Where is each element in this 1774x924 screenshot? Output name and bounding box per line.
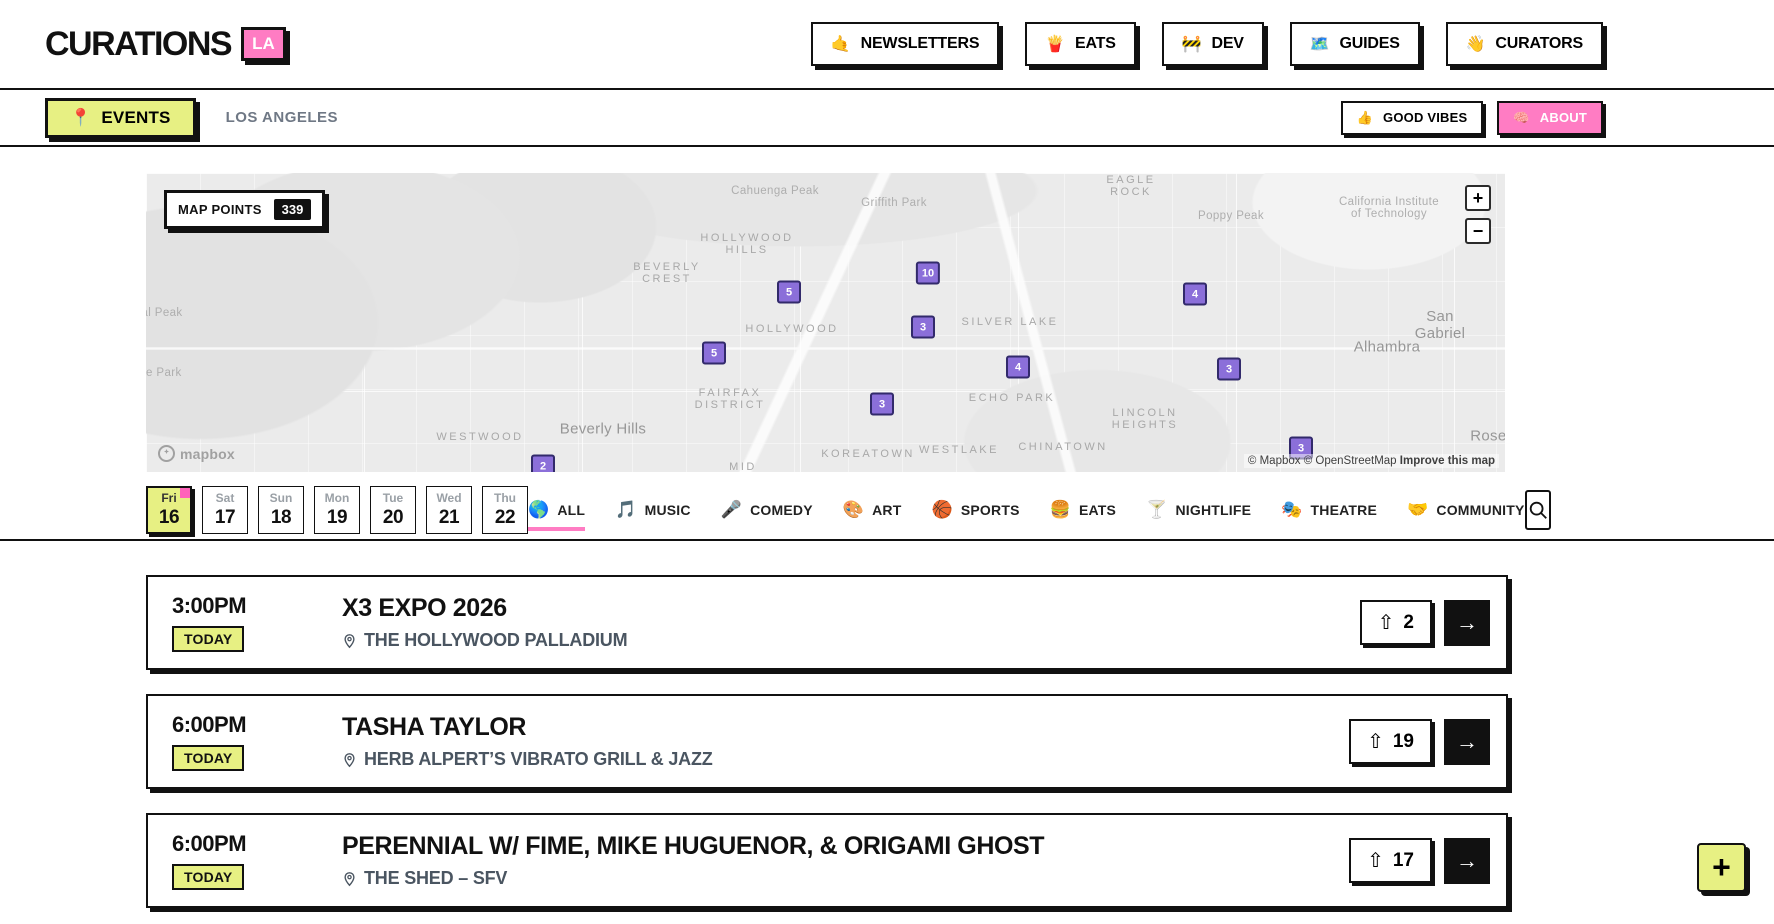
map-cluster-marker[interactable]: 4 — [1006, 356, 1030, 379]
event-venue: HERB ALPERT’S VIBRATO GRILL & JAZZ — [342, 749, 1349, 770]
map-place-label: KOREATOWN — [821, 448, 915, 460]
category-filter[interactable]: 🌎 ALL — [528, 500, 585, 520]
map-place-label: BEVERLY CREST — [633, 261, 700, 285]
event-venue-name: THE HOLLYWOOD PALLADIUM — [364, 630, 627, 651]
date-day-name: Mon — [325, 491, 350, 505]
date-day-name: Sat — [216, 491, 235, 505]
map-place-label: Griffith Park — [861, 197, 927, 209]
category-icon: 🎤 — [721, 500, 742, 520]
map-attribution: © Mapbox © OpenStreetMap Improve this ma… — [1244, 454, 1499, 468]
nav-button-icon: 👋 — [1466, 34, 1486, 54]
category-icon: 🍸 — [1146, 500, 1167, 520]
logo-la-badge: LA — [241, 27, 286, 61]
map-terrain — [146, 173, 1505, 472]
event-venue: THE HOLLYWOOD PALLADIUM — [342, 630, 1360, 651]
upvote-arrow-icon: ⇧ — [1367, 848, 1384, 873]
nav-button-icon: 🤙 — [831, 34, 851, 54]
location-pin-icon — [342, 870, 357, 888]
date-day-number: 18 — [271, 507, 291, 529]
map-cluster-marker[interactable]: 2 — [531, 455, 555, 473]
event-time-column: 6:00PM TODAY — [172, 712, 324, 771]
map-cluster-marker[interactable]: 3 — [870, 393, 894, 416]
nav-button-label: NEWSLETTERS — [861, 35, 980, 53]
date-day-name: Sun — [270, 491, 293, 505]
pin-icon: 📍 — [70, 108, 91, 128]
nav-button-label: GUIDES — [1340, 35, 1400, 53]
brain-icon: 🧠 — [1513, 110, 1529, 126]
map-place-label: te Park — [146, 367, 182, 379]
mapbox-logo[interactable]: mapbox — [158, 445, 235, 462]
nav-button[interactable]: 👋 CURATORS — [1446, 22, 1603, 66]
category-label: EATS — [1079, 502, 1116, 518]
category-filters: 🌎 ALL 🎵 MUSIC 🎤 COMEDY 🎨 ART — [528, 500, 1525, 520]
map-place-label: Beverly Hills — [560, 421, 646, 438]
category-icon: 🌎 — [528, 500, 549, 520]
event-detail-arrow-button[interactable]: → — [1444, 838, 1490, 884]
event-title: X3 EXPO 2026 — [342, 594, 1360, 623]
category-filter[interactable]: 🍸 NIGHTLIFE — [1146, 500, 1251, 520]
date-day-number: 17 — [215, 507, 235, 529]
category-filter[interactable]: 🎤 COMEDY — [721, 500, 813, 520]
nav-button-icon: 🚧 — [1182, 34, 1202, 54]
category-label: THEATRE — [1311, 502, 1377, 518]
nav-button[interactable]: 🍟 EATS — [1025, 22, 1135, 66]
date-day-name: Fri — [161, 491, 176, 505]
nav-button-label: EATS — [1075, 35, 1116, 53]
event-detail-arrow-button[interactable]: → — [1444, 719, 1490, 765]
page: CURATIONS LA 🤙 NEWSLETTERS 🍟 EATS 🚧 DEV — [0, 0, 1774, 924]
category-label: NIGHTLIFE — [1175, 502, 1251, 518]
map-cluster-marker[interactable]: 3 — [911, 316, 935, 339]
map-section: MAP POINTS 339 Cahuenga Peak Griffith Pa… — [0, 147, 1774, 480]
category-filter[interactable]: 🏀 SPORTS — [931, 500, 1019, 520]
upvote-arrow-icon: ⇧ — [1378, 610, 1395, 635]
good-vibes-button[interactable]: 👍 GOOD VIBES — [1341, 101, 1484, 135]
upvote-count: 17 — [1393, 850, 1414, 872]
map-cluster-marker[interactable]: 5 — [777, 281, 801, 304]
date-option[interactable]: Fri 16 — [146, 486, 192, 534]
mapbox-logo-text: mapbox — [180, 446, 235, 462]
category-label: COMMUNITY — [1436, 502, 1524, 518]
map-zoom-controls: + − — [1465, 185, 1491, 244]
map-place-label: al Peak — [146, 307, 183, 319]
osm-attribution-link[interactable]: © OpenStreetMap — [1304, 455, 1397, 467]
zoom-out-button[interactable]: − — [1465, 218, 1491, 244]
event-time: 6:00PM — [172, 831, 246, 857]
event-today-badge: TODAY — [172, 745, 244, 771]
city-label: LOS ANGELES — [226, 109, 338, 126]
zoom-in-button[interactable]: + — [1465, 185, 1491, 211]
category-label: SPORTS — [961, 502, 1020, 518]
date-day-number: 21 — [439, 507, 459, 529]
about-button[interactable]: 🧠 ABOUT — [1497, 101, 1603, 135]
event-time-column: 6:00PM TODAY — [172, 831, 324, 890]
date-day-number: 22 — [495, 507, 515, 529]
event-card[interactable]: 6:00PM TODAY PERENNIAL W/ FIME, MIKE HUG… — [146, 813, 1508, 908]
nav-button[interactable]: 🗺️ GUIDES — [1290, 22, 1420, 66]
event-card[interactable]: 6:00PM TODAY TASHA TAYLOR HERB ALPERT’S … — [146, 694, 1508, 789]
map-place-label: LINCOLN HEIGHTS — [1112, 407, 1178, 431]
category-filter[interactable]: 🎭 THEATRE — [1281, 500, 1377, 520]
event-card[interactable]: 3:00PM TODAY X3 EXPO 2026 THE HOLLYWOOD … — [146, 575, 1508, 670]
event-detail-arrow-button[interactable]: → — [1444, 600, 1490, 646]
filter-row: Fri 16 Sat 17 Sun 18 Mon 19 — [0, 480, 1774, 541]
logo-text: CURATIONS — [45, 25, 231, 64]
upvote-arrow-icon: ⇧ — [1367, 729, 1384, 754]
map-place-label: EAGLE ROCK — [1106, 174, 1155, 198]
location-pin-icon — [342, 632, 357, 650]
date-option[interactable]: Sat 17 — [202, 486, 248, 534]
map-cluster-marker[interactable]: 4 — [1183, 283, 1207, 306]
event-time-column: 3:00PM TODAY — [172, 593, 324, 652]
map-place-label: Cahuenga Peak — [731, 185, 819, 197]
nav-button-label: CURATORS — [1495, 35, 1583, 53]
category-label: ART — [872, 502, 901, 518]
category-icon: 🎨 — [843, 500, 864, 520]
event-title: PERENNIAL W/ FIME, MIKE HUGUENOR, & ORIG… — [342, 832, 1349, 861]
map-place-label: California Institute of Technology — [1339, 196, 1439, 220]
right-arrow-icon: → — [1456, 848, 1478, 874]
map-cluster-marker[interactable]: 5 — [702, 342, 726, 365]
event-main: PERENNIAL W/ FIME, MIKE HUGUENOR, & ORIG… — [324, 832, 1349, 889]
category-filter[interactable]: 🍔 EATS — [1050, 500, 1116, 520]
event-main: TASHA TAYLOR HERB ALPERT’S VIBRATO GRILL… — [324, 713, 1349, 770]
events-list: 3:00PM TODAY X3 EXPO 2026 THE HOLLYWOOD … — [0, 541, 1774, 908]
map-place-label: Alhambra — [1354, 339, 1421, 356]
map-place-label: HOLLYWOOD — [745, 323, 838, 335]
map-cluster-marker[interactable]: 3 — [1217, 358, 1241, 381]
event-venue-name: HERB ALPERT’S VIBRATO GRILL & JAZZ — [364, 749, 713, 770]
map-place-label: Poppy Peak — [1198, 210, 1264, 222]
location-pin-icon — [342, 751, 357, 769]
map-cluster-marker[interactable]: 10 — [916, 262, 940, 285]
map-place-label: SILVER LAKE — [962, 316, 1059, 328]
category-icon: 🤝 — [1407, 500, 1428, 520]
mapbox-attribution-link[interactable]: © Mapbox — [1248, 455, 1301, 467]
map-place-label: HOLLYWOOD HILLS — [700, 232, 793, 256]
date-day-name: Tue — [383, 491, 403, 505]
event-today-badge: TODAY — [172, 864, 244, 890]
map-place-label: WESTWOOD — [436, 431, 523, 443]
top-header: CURATIONS LA 🤙 NEWSLETTERS 🍟 EATS 🚧 DEV — [0, 0, 1774, 90]
upvote-count: 2 — [1403, 612, 1414, 634]
upvote-button[interactable]: ⇧ 17 — [1349, 838, 1432, 883]
date-option[interactable]: Thu 22 — [482, 486, 528, 534]
date-option[interactable]: Wed 21 — [426, 486, 472, 534]
category-icon: 🎭 — [1281, 500, 1302, 520]
date-option[interactable]: Mon 19 — [314, 486, 360, 534]
about-label: ABOUT — [1540, 110, 1587, 125]
nav-button-label: DEV — [1211, 35, 1243, 53]
category-label: MUSIC — [645, 502, 691, 518]
date-day-number: 16 — [159, 507, 179, 529]
good-vibes-label: GOOD VIBES — [1383, 110, 1467, 125]
event-venue: THE SHED – SFV — [342, 868, 1349, 889]
category-icon: 🏀 — [931, 500, 952, 520]
category-filter[interactable]: 🎨 ART — [843, 500, 902, 520]
events-button-label: EVENTS — [101, 108, 170, 128]
map-place-label: Roser — [1470, 428, 1505, 445]
event-today-badge: TODAY — [172, 626, 244, 652]
improve-map-link[interactable]: Improve this map — [1400, 455, 1495, 467]
event-time: 6:00PM — [172, 712, 246, 738]
event-actions: ⇧ 19 → — [1349, 719, 1490, 765]
map-points-count: 339 — [274, 199, 312, 220]
upvote-count: 19 — [1393, 731, 1414, 753]
date-option[interactable]: Tue 20 — [370, 486, 416, 534]
map-place-label: MID — [729, 461, 757, 472]
search-icon — [1527, 499, 1549, 521]
event-main: X3 EXPO 2026 THE HOLLYWOOD PALLADIUM — [324, 594, 1360, 651]
nav-button[interactable]: 🚧 DEV — [1162, 22, 1264, 66]
category-label: COMEDY — [750, 502, 813, 518]
logo[interactable]: CURATIONS LA — [45, 25, 286, 64]
nav-button-icon: 🗺️ — [1310, 34, 1330, 54]
map-roads — [146, 173, 1505, 472]
map-place-label: San Gabriel — [1408, 308, 1473, 342]
main-nav: 🤙 NEWSLETTERS 🍟 EATS 🚧 DEV 🗺️ GUIDES — [811, 22, 1603, 66]
mapbox-logo-icon — [158, 445, 175, 462]
category-filter[interactable]: 🤝 COMMUNITY — [1407, 500, 1525, 520]
right-arrow-icon: → — [1456, 729, 1478, 755]
date-day-name: Thu — [494, 491, 516, 505]
right-arrow-icon: → — [1456, 610, 1478, 636]
event-actions: ⇧ 2 → — [1360, 600, 1490, 646]
event-venue-name: THE SHED – SFV — [364, 868, 507, 889]
map-place-label: ECHO PARK — [969, 392, 1055, 404]
map-place-label: FAIRFAX DISTRICT — [695, 387, 766, 411]
date-day-number: 19 — [327, 507, 347, 529]
date-day-number: 20 — [383, 507, 403, 529]
upvote-button[interactable]: ⇧ 19 — [1349, 719, 1432, 764]
add-event-fab[interactable]: + — [1697, 843, 1746, 892]
nav-button[interactable]: 🤙 NEWSLETTERS — [811, 22, 999, 66]
search-button[interactable] — [1525, 490, 1551, 530]
category-icon: 🍔 — [1050, 500, 1071, 520]
event-title: TASHA TAYLOR — [342, 713, 1349, 742]
category-icon: 🎵 — [615, 500, 636, 520]
date-selector: Fri 16 Sat 17 Sun 18 Mon 19 — [146, 486, 528, 534]
map-points-badge: MAP POINTS 339 — [164, 190, 325, 229]
map-points-label: MAP POINTS — [178, 202, 262, 217]
subheader-actions: 👍 GOOD VIBES 🧠 ABOUT — [1341, 101, 1603, 135]
events-button[interactable]: 📍 EVENTS — [45, 98, 196, 138]
upvote-button[interactable]: ⇧ 2 — [1360, 600, 1432, 645]
event-actions: ⇧ 17 → — [1349, 838, 1490, 884]
category-filter[interactable]: 🎵 MUSIC — [615, 500, 691, 520]
date-day-name: Wed — [436, 491, 461, 505]
category-label: ALL — [557, 502, 585, 518]
date-option[interactable]: Sun 18 — [258, 486, 304, 534]
nav-button-icon: 🍟 — [1045, 34, 1065, 54]
event-time: 3:00PM — [172, 593, 246, 619]
map-place-label: WESTLAKE — [919, 444, 999, 456]
map-canvas[interactable]: MAP POINTS 339 Cahuenga Peak Griffith Pa… — [146, 173, 1505, 472]
sub-header: 📍 EVENTS LOS ANGELES 👍 GOOD VIBES 🧠 ABOU… — [0, 90, 1774, 147]
map-place-label: CHINATOWN — [1018, 441, 1107, 453]
thumbs-up-icon: 👍 — [1357, 110, 1373, 126]
